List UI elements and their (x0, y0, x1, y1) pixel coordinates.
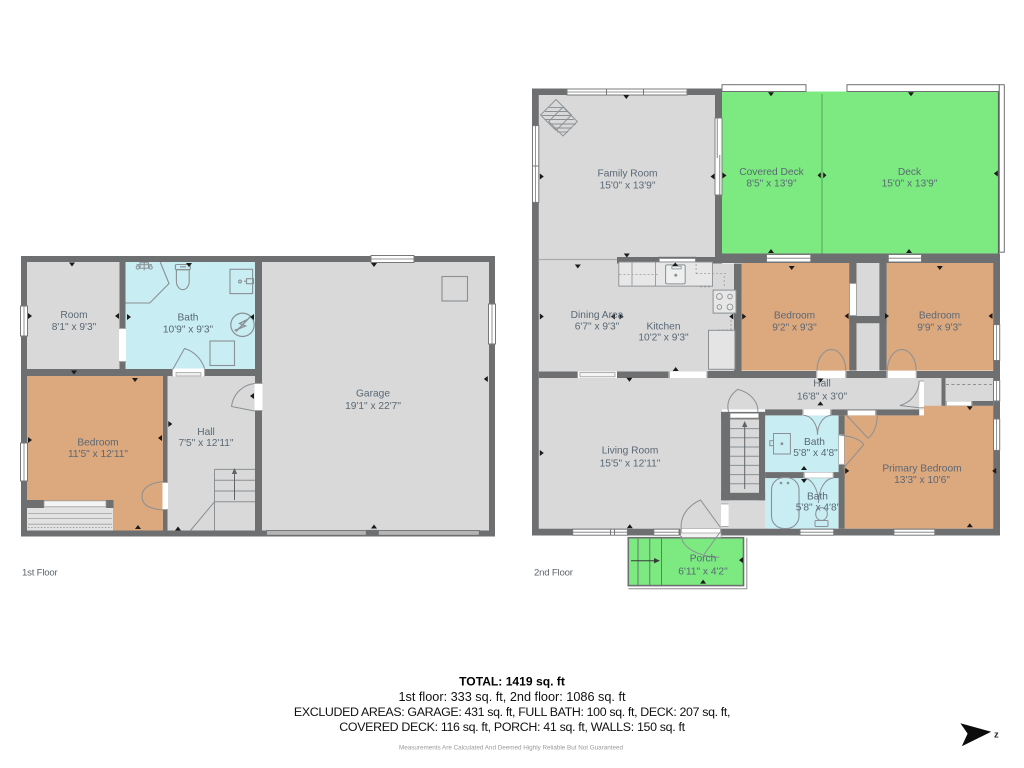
svg-text:11'5" x 12'11": 11'5" x 12'11" (68, 449, 128, 460)
svg-text:Family Room: Family Room (597, 169, 657, 180)
svg-text:5'8" x 4'8": 5'8" x 4'8" (796, 503, 841, 514)
svg-text:6'11" x 4'2": 6'11" x 4'2" (678, 566, 728, 577)
svg-text:EXCLUDED AREAS: GARAGE: 431 sq: EXCLUDED AREAS: GARAGE: 431 sq. ft, FULL… (294, 705, 730, 719)
svg-text:Room: Room (60, 310, 87, 321)
svg-text:Porch: Porch (690, 553, 717, 564)
svg-text:2nd Floor: 2nd Floor (534, 568, 574, 579)
svg-text:Bath: Bath (178, 313, 199, 324)
svg-text:Bath: Bath (807, 491, 828, 502)
svg-text:Garage: Garage (356, 389, 390, 400)
svg-text:7'5" x 12'11": 7'5" x 12'11" (178, 438, 233, 449)
svg-text:15'0" x 13'9": 15'0" x 13'9" (600, 180, 656, 191)
svg-text:Dining Area: Dining Area (571, 310, 624, 321)
svg-text:6'7" x 9'3": 6'7" x 9'3" (575, 321, 620, 332)
svg-text:Bath: Bath (804, 437, 825, 448)
svg-text:TOTAL: 1419 sq. ft: TOTAL: 1419 sq. ft (459, 675, 565, 689)
svg-text:Bedroom: Bedroom (774, 310, 815, 321)
svg-text:Deck: Deck (898, 167, 922, 178)
svg-text:Hall: Hall (813, 379, 831, 390)
svg-text:Covered Deck: Covered Deck (739, 167, 804, 178)
svg-text:9'9" x 9'3": 9'9" x 9'3" (917, 323, 962, 334)
svg-text:19'1" x 22'7": 19'1" x 22'7" (345, 401, 401, 412)
svg-text:9'2" x 9'3": 9'2" x 9'3" (772, 323, 817, 334)
svg-text:15'5" x 12'11": 15'5" x 12'11" (600, 459, 661, 470)
svg-text:5'8" x 4'8": 5'8" x 4'8" (793, 448, 838, 459)
svg-text:8'5" x 13'9": 8'5" x 13'9" (746, 179, 797, 190)
svg-text:8'1" x 9'3": 8'1" x 9'3" (52, 322, 97, 333)
svg-text:10'2" x 9'3": 10'2" x 9'3" (638, 333, 689, 344)
svg-text:Bedroom: Bedroom (919, 310, 960, 321)
svg-text:Bedroom: Bedroom (77, 438, 118, 449)
svg-text:Living Room: Living Room (602, 446, 659, 457)
svg-text:15'0" x 13'9": 15'0" x 13'9" (882, 179, 938, 190)
svg-text:Kitchen: Kitchen (647, 321, 681, 332)
svg-text:10'9" x 9'3": 10'9" x 9'3" (163, 325, 214, 336)
svg-text:Primary Bedroom: Primary Bedroom (882, 464, 961, 475)
svg-text:1st floor: 333 sq. ft, 2nd flo: 1st floor: 333 sq. ft, 2nd floor: 1086 s… (398, 690, 626, 704)
svg-text:Measurements Are Calculated An: Measurements Are Calculated And Deemed H… (399, 745, 624, 752)
svg-text:1st Floor: 1st Floor (22, 568, 59, 579)
svg-text:Hall: Hall (197, 427, 215, 438)
svg-text:COVERED DECK: 116 sq. ft, PORC: COVERED DECK: 116 sq. ft, PORCH: 41 sq. … (339, 720, 685, 734)
svg-text:z: z (994, 730, 999, 741)
svg-text:16'8" x 3'0": 16'8" x 3'0" (797, 392, 848, 403)
svg-text:13'3" x 10'6": 13'3" x 10'6" (894, 475, 950, 486)
